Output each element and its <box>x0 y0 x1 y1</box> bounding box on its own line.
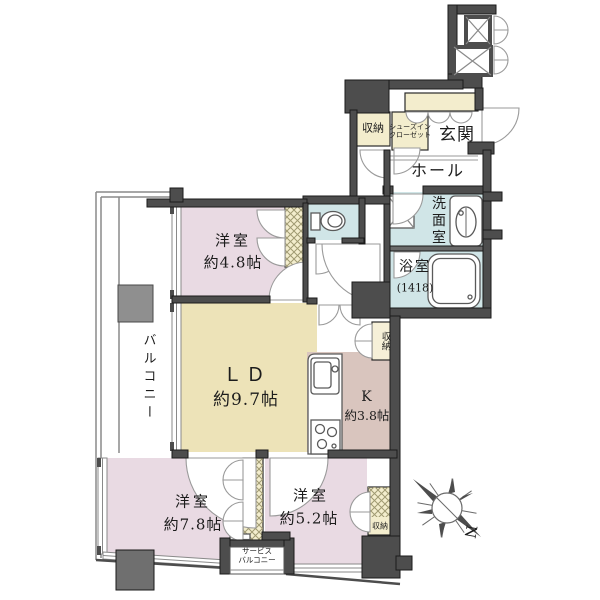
service-balcony-label: サービスバルコニー <box>238 547 275 564</box>
living-dining-label: ＬＤ <box>223 365 269 387</box>
bathroom-label: 浴室 <box>399 259 431 275</box>
bedroom2-label: 洋室 <box>175 493 211 510</box>
bathroom-size: (1418) <box>397 283 434 296</box>
bedroom1-label: 洋室 <box>215 232 251 249</box>
toilet-icon <box>311 212 345 231</box>
entrance-door-arc <box>482 108 519 145</box>
kitchen-counter <box>308 354 342 454</box>
entrance-storage-label: 収納 <box>362 123 384 136</box>
bedroom1-size: 約4.8帖 <box>204 254 263 271</box>
bedroom2-size: 約7.8帖 <box>164 516 223 533</box>
meterbox-cabinets <box>454 17 491 75</box>
bedroom3-storage-label: 収納 <box>372 521 388 530</box>
pillar <box>352 282 390 318</box>
cupboard-scallop3 <box>450 112 472 123</box>
ld-double-door1 <box>319 305 339 325</box>
hall-label: ホール <box>411 162 465 180</box>
corner-pillar <box>116 550 154 590</box>
genkan-label: 玄関 <box>439 126 475 146</box>
balcony-pillar <box>118 285 153 322</box>
bedroom3-label: 洋室 <box>293 487 329 504</box>
ld-storage-door1 <box>355 324 372 341</box>
stove-icon <box>311 420 340 454</box>
cupboard-scallop2 <box>428 112 450 123</box>
kitchen-size: 約3.8帖 <box>345 409 390 423</box>
meterbox-door1 <box>494 16 508 30</box>
washbasin-icon <box>450 196 482 246</box>
meterbox-door4 <box>494 60 508 74</box>
compass-north-label: N <box>460 524 479 541</box>
bedroom3-size: 約5.2帖 <box>280 510 339 527</box>
meterbox-door2 <box>494 30 508 44</box>
floorplan-image: 玄関 ホール 洗面室 浴室 (1418) 収納 シューズインクローゼット 洋室 … <box>0 0 600 600</box>
balcony-label: バルコニー <box>140 333 155 423</box>
ld-storage-label: 収納 <box>379 332 390 351</box>
washroom-label: 洗面室 <box>430 196 446 247</box>
bathtub-icon <box>428 254 480 308</box>
kitchen-label: K <box>361 389 372 405</box>
genkan-cupboard <box>405 93 478 111</box>
meterbox-door3 <box>494 46 508 60</box>
shoes-closet-label: シューズインクローゼット <box>389 123 431 139</box>
living-dining-size: 約9.7帖 <box>213 391 279 411</box>
